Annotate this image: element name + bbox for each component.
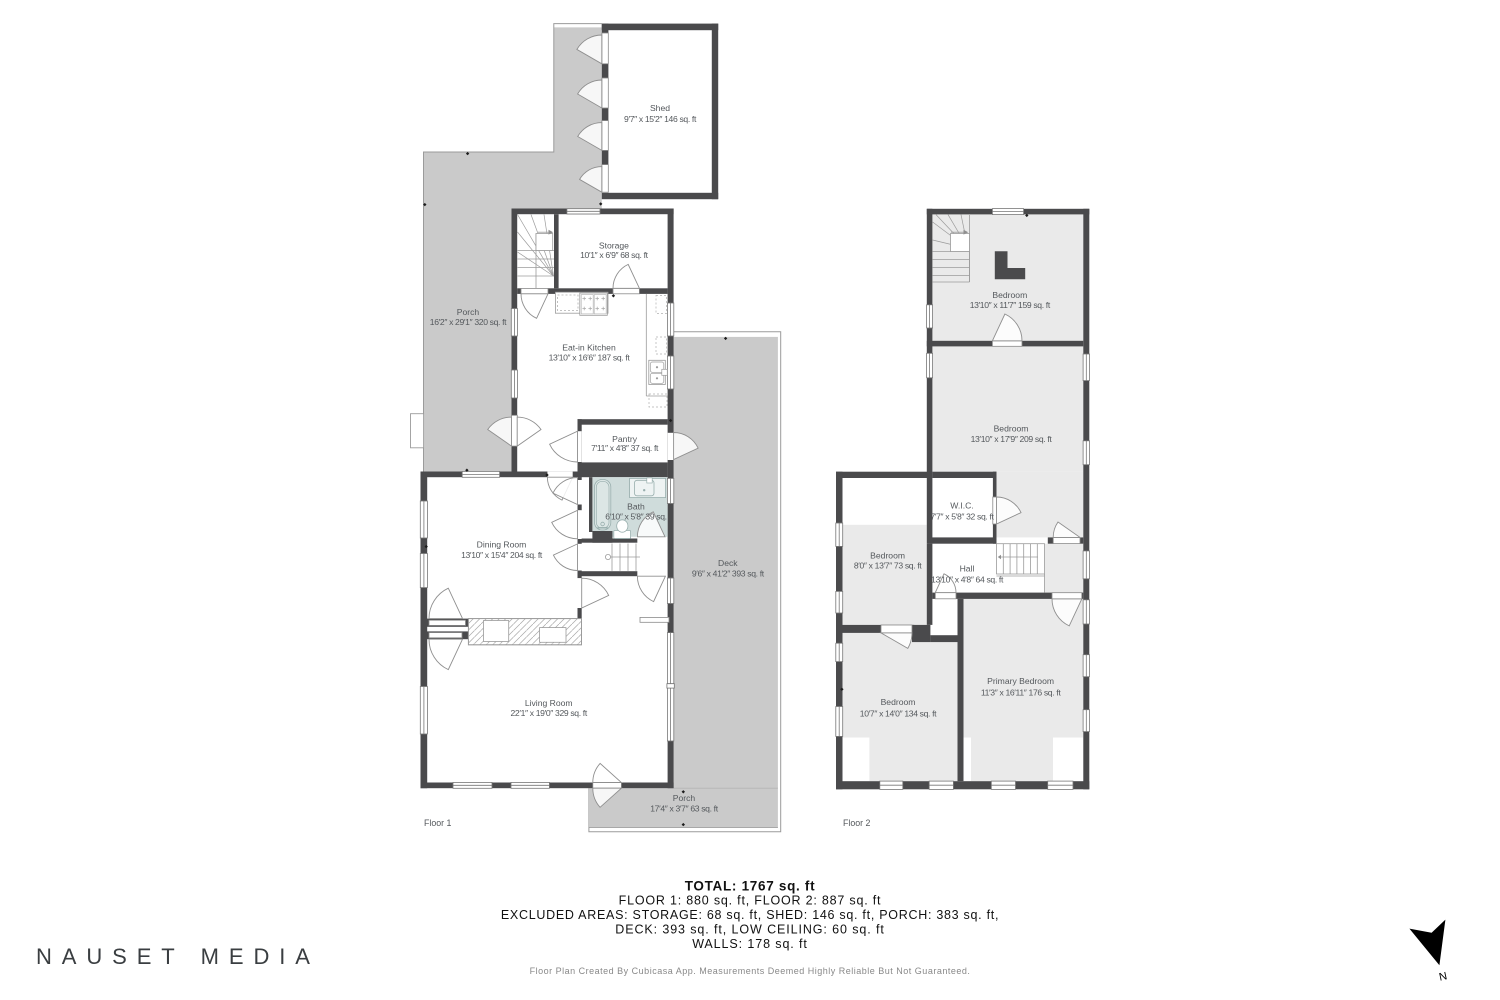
svg-text:13′10″ x 16′6″ 187 sq. ft: 13′10″ x 16′6″ 187 sq. ft [549, 352, 631, 362]
svg-text:7′11″ x 4′8″ 37 sq. ft: 7′11″ x 4′8″ 37 sq. ft [591, 443, 659, 453]
svg-text:EXCLUDED AREAS: STORAGE: 68 sq: EXCLUDED AREAS: STORAGE: 68 sq. ft, SHED… [501, 908, 999, 922]
svg-text:DECK: 393 sq. ft, LOW CEILING:: DECK: 393 sq. ft, LOW CEILING: 60 sq. ft [615, 923, 884, 937]
svg-text:Storage: Storage [599, 241, 629, 251]
svg-text:Bedroom: Bedroom [870, 551, 905, 561]
svg-text:Living Room: Living Room [525, 698, 573, 708]
svg-text:WALLS: 178 sq. ft: WALLS: 178 sq. ft [692, 937, 808, 951]
svg-text:11′3″ x 16′11″ 176 sq. ft: 11′3″ x 16′11″ 176 sq. ft [981, 688, 1062, 698]
svg-text:9′7″ x 15′2″ 146 sq. ft: 9′7″ x 15′2″ 146 sq. ft [624, 114, 697, 124]
svg-text:9′6″ x 41′2″ 393 sq. ft: 9′6″ x 41′2″ 393 sq. ft [692, 569, 765, 579]
svg-text:Eat-in Kitchen: Eat-in Kitchen [562, 343, 616, 353]
svg-text:13′10″ x 11′7″ 159 sq. ft: 13′10″ x 11′7″ 159 sq. ft [970, 300, 1051, 310]
svg-text:7′7″ x 5′8″ 32 sq. ft: 7′7″ x 5′8″ 32 sq. ft [930, 512, 994, 522]
svg-text:Hall: Hall [960, 564, 975, 574]
svg-text:6′10″ x 5′8″ 39 sq.: 6′10″ x 5′8″ 39 sq. [605, 512, 666, 522]
svg-text:13′10″ x 17′9″ 209 sq. ft: 13′10″ x 17′9″ 209 sq. ft [971, 434, 1053, 444]
svg-text:8′0″ x 13′7″ 73 sq. ft: 8′0″ x 13′7″ 73 sq. ft [854, 561, 922, 571]
svg-text:Primary Bedroom: Primary Bedroom [987, 676, 1054, 686]
svg-text:10′1″ x 6′9″ 68 sq. ft: 10′1″ x 6′9″ 68 sq. ft [580, 250, 648, 260]
svg-text:Floor 2: Floor 2 [843, 818, 870, 828]
svg-text:TOTAL: 1767 sq. ft: TOTAL: 1767 sq. ft [685, 879, 816, 894]
svg-text:NAUSET MEDIA: NAUSET MEDIA [36, 944, 320, 969]
svg-text:FLOOR 1: 880 sq. ft, FLOOR 2:: FLOOR 1: 880 sq. ft, FLOOR 2: 887 sq. ft [619, 894, 882, 908]
svg-text:Dining Room: Dining Room [477, 540, 527, 550]
svg-text:Floor 1: Floor 1 [424, 818, 451, 828]
svg-text:Porch: Porch [673, 793, 696, 803]
svg-text:Floor Plan Created By Cubicasa: Floor Plan Created By Cubicasa App. Meas… [530, 966, 971, 976]
svg-text:Bedroom: Bedroom [881, 697, 916, 707]
svg-text:13′10″ x 4′8″ 64 sq. ft: 13′10″ x 4′8″ 64 sq. ft [931, 575, 1004, 585]
svg-text:W.I.C.: W.I.C. [950, 501, 973, 511]
svg-text:17′4″ x 3′7″ 63 sq. ft: 17′4″ x 3′7″ 63 sq. ft [650, 804, 718, 814]
svg-text:Bath: Bath [627, 501, 645, 511]
svg-text:Deck: Deck [718, 558, 738, 568]
svg-text:22′1″ x 19′0″ 329 sq. ft: 22′1″ x 19′0″ 329 sq. ft [510, 708, 587, 718]
svg-text:Bedroom: Bedroom [992, 290, 1027, 300]
svg-text:16′2″ x 29′1″ 320 sq. ft: 16′2″ x 29′1″ 320 sq. ft [430, 317, 507, 327]
svg-text:Porch: Porch [457, 307, 480, 317]
svg-text:13′10″ x 15′4″ 204 sq. ft: 13′10″ x 15′4″ 204 sq. ft [461, 550, 543, 560]
svg-text:10′7″ x 14′0″ 134 sq. ft: 10′7″ x 14′0″ 134 sq. ft [860, 709, 937, 719]
svg-text:Bedroom: Bedroom [994, 424, 1029, 434]
svg-text:Shed: Shed [650, 103, 670, 113]
